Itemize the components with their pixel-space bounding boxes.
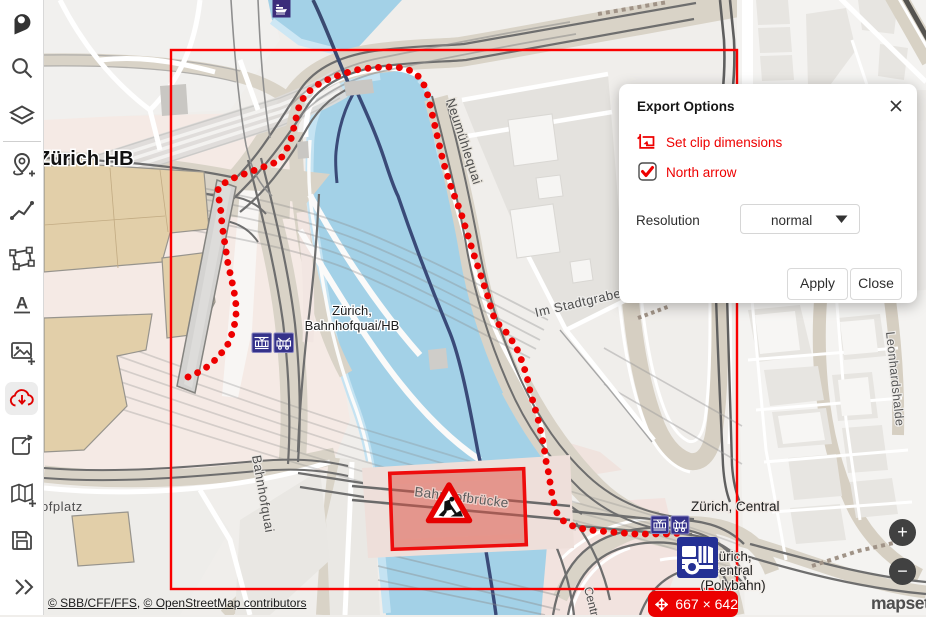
svg-text:Zürich, Central: Zürich, Central — [691, 499, 780, 514]
svg-text:Bahnhofquai/HB: Bahnhofquai/HB — [305, 318, 400, 333]
svg-text:Zürich HB: Zürich HB — [38, 148, 134, 170]
svg-text:Zürich,: Zürich, — [332, 303, 372, 318]
svg-text:ofplatz: ofplatz — [41, 499, 83, 514]
svg-text:A: A — [16, 294, 28, 313]
